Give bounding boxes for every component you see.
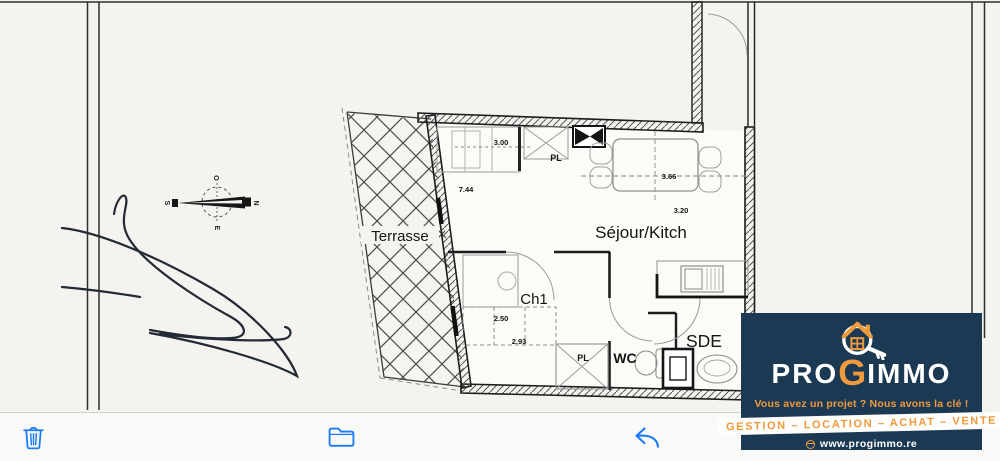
- brand-tagline: Vous avez un projet ? Nous avons la clé …: [755, 398, 969, 410]
- compass-east: E: [213, 226, 220, 231]
- entry-walls: [692, 2, 755, 126]
- dim-facade-length: 7.44: [459, 185, 474, 194]
- dim-bedroom-width: 2.50: [494, 314, 509, 323]
- brand-g: G: [838, 352, 867, 393]
- trash-icon: [20, 424, 47, 451]
- dim-living-depth: 3.20: [674, 206, 689, 215]
- dim-kitchen-run: 3.00: [494, 138, 509, 147]
- reply-button[interactable]: [632, 424, 662, 451]
- services-banner: GESTION – LOCATION – ACHAT – VENTE: [717, 411, 1000, 435]
- globe-icon: [806, 440, 815, 449]
- closet-label-bottom: PL: [577, 353, 589, 363]
- dim-living-width: 3.66: [662, 172, 677, 181]
- website-url: www.progimmo.re: [820, 438, 917, 450]
- room-label-terrace: Terrasse: [371, 228, 429, 245]
- room-label-bedroom: Ch1: [520, 291, 548, 308]
- progimmo-watermark: PROGIMMO Vous avez un projet ? Nous avon…: [741, 313, 982, 450]
- viewer-screen: O N E S Séjour/Kitch Terrasse Ch1 WC SDE…: [0, 0, 1000, 461]
- reply-arrow-icon: [632, 424, 662, 451]
- delete-button[interactable]: [20, 424, 47, 451]
- brand-pro: PRO: [772, 358, 839, 389]
- brand-immo: IMMO: [867, 358, 951, 389]
- compass-rose: O N E S: [163, 175, 259, 230]
- dim-bedroom-closet: 2.93: [512, 337, 527, 346]
- handwritten-signature: [62, 196, 297, 376]
- save-to-files-button[interactable]: [327, 425, 356, 450]
- room-label-shower-room: SDE: [686, 331, 722, 351]
- website-row: www.progimmo.re: [806, 438, 917, 450]
- closet-label-top: PL: [550, 153, 562, 163]
- folder-icon: [327, 425, 356, 450]
- compass-north: N: [252, 200, 259, 205]
- room-label-wc: WC: [613, 350, 636, 366]
- brand-wordmark: PROGIMMO: [772, 358, 952, 394]
- compass-south: S: [163, 201, 170, 206]
- compass-west: O: [212, 175, 219, 181]
- room-label-living: Séjour/Kitch: [595, 223, 687, 242]
